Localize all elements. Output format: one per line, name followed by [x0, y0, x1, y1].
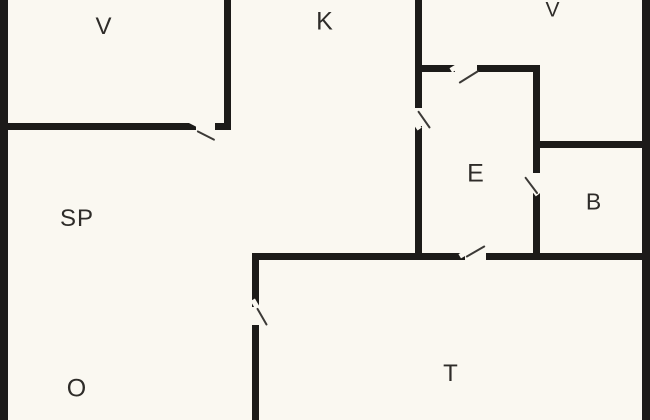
- floorplan-canvas: VKVSPEBOT: [0, 0, 650, 420]
- room-label-e-center: E: [467, 162, 485, 187]
- room-label-v-top-right: V: [545, 0, 560, 21]
- labels-layer: VKVSPEBOT: [0, 0, 650, 420]
- room-label-t-bottom: T: [443, 362, 459, 386]
- room-label-o-bottom: O: [67, 377, 87, 402]
- room-label-b-right: B: [586, 191, 602, 214]
- room-label-sp-left: SP: [60, 207, 94, 231]
- room-label-k-top-mid: K: [316, 10, 334, 35]
- room-label-v-top-left: V: [95, 15, 112, 39]
